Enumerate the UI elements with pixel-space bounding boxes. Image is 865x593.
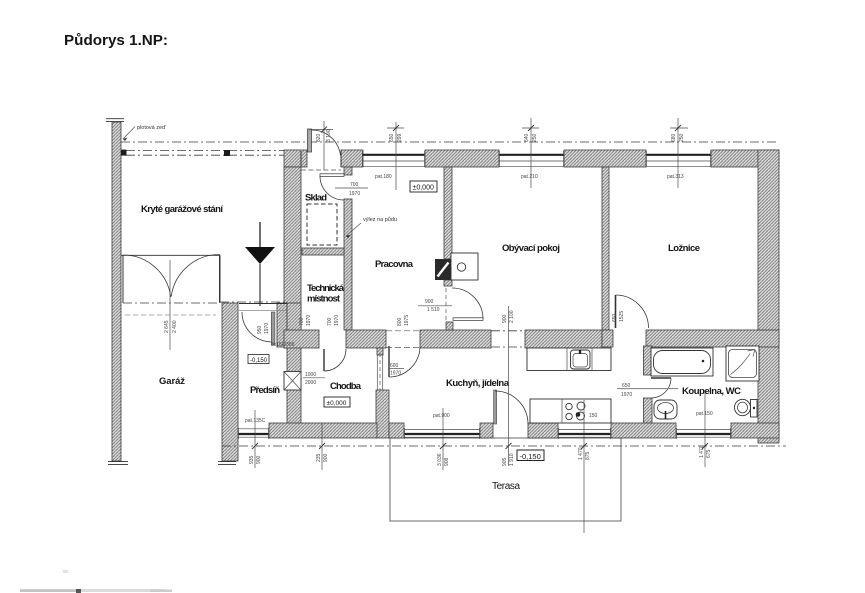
- svg-text:Garáž: Garáž: [159, 376, 185, 387]
- svg-text:Chodba: Chodba: [330, 381, 362, 392]
- svg-text:700: 700: [350, 182, 359, 188]
- svg-text:1 910: 1 910: [509, 453, 515, 466]
- svg-text:150: 150: [589, 413, 598, 419]
- svg-text:600: 600: [390, 363, 399, 369]
- svg-text:Kryté garážové stání: Kryté garážové stání: [141, 204, 223, 215]
- svg-text:pat.313: pat.313: [667, 174, 684, 180]
- svg-text:místnost: místnost: [307, 294, 341, 305]
- svg-text:Obývací pokoj: Obývací pokoj: [502, 243, 560, 254]
- svg-text:1970: 1970: [390, 371, 401, 377]
- svg-text:Technická: Technická: [307, 283, 345, 294]
- svg-text:900: 900: [425, 299, 434, 305]
- svg-text:3 036: 3 036: [437, 453, 443, 466]
- svg-text:-0,150: -0,150: [520, 452, 541, 461]
- svg-text:plotová zeď: plotová zeď: [137, 125, 166, 131]
- svg-text:250: 250: [532, 133, 538, 142]
- svg-text:2 400: 2 400: [172, 320, 178, 333]
- svg-text:900: 900: [323, 453, 329, 462]
- svg-text:900: 900: [256, 455, 262, 464]
- svg-text:700: 700: [327, 317, 333, 326]
- svg-text:820: 820: [316, 133, 322, 142]
- svg-text:1970: 1970: [264, 323, 270, 334]
- svg-text:pat.900: pat.900: [433, 413, 450, 419]
- svg-text:1 510: 1 510: [427, 307, 440, 313]
- svg-text:1525: 1525: [619, 311, 625, 322]
- svg-text:Sklad: Sklad: [305, 193, 327, 204]
- svg-text:900: 900: [502, 314, 508, 323]
- svg-text:pat.150: pat.150: [696, 411, 713, 417]
- svg-text:800: 800: [397, 317, 403, 326]
- svg-text:pat.210: pat.210: [521, 174, 538, 180]
- svg-text:pat.180: pat.180: [375, 174, 392, 180]
- svg-text:2000: 2000: [305, 380, 316, 386]
- svg-text:±0,000: ±0,000: [413, 185, 434, 192]
- svg-text:-0,150: -0,150: [250, 358, 268, 364]
- svg-text:935: 935: [249, 455, 255, 464]
- svg-text:2 100: 2 100: [509, 310, 515, 323]
- svg-text:Půdorys 1.NP:: Půdorys 1.NP:: [64, 33, 168, 49]
- svg-text:250: 250: [679, 133, 685, 142]
- svg-text:1970: 1970: [306, 315, 312, 326]
- svg-text:1000: 1000: [305, 372, 316, 378]
- svg-text:875: 875: [585, 451, 591, 460]
- svg-text:výlez na půdu: výlez na půdu: [363, 216, 397, 223]
- svg-text:Předsíň: Předsíň: [250, 385, 280, 396]
- svg-text:1 470: 1 470: [578, 447, 584, 460]
- svg-text:±0,000: ±0,000: [327, 400, 347, 407]
- svg-text:640: 640: [524, 133, 530, 142]
- svg-text:908: 908: [444, 457, 450, 466]
- svg-text:680: 680: [671, 133, 677, 142]
- svg-text:Pracovna: Pracovna: [375, 259, 414, 270]
- svg-text:Koupelna, WC: Koupelna, WC: [682, 386, 741, 397]
- svg-text:Kuchyň, jídelna: Kuchyň, jídelna: [446, 378, 510, 389]
- svg-text:Terasa: Terasa: [492, 481, 520, 492]
- svg-text:Ložnice: Ložnice: [668, 243, 700, 254]
- svg-text:3x150/300: 3x150/300: [271, 342, 295, 348]
- svg-text:1970: 1970: [621, 392, 632, 398]
- svg-text:2 645: 2 645: [164, 320, 170, 333]
- svg-text:299: 299: [397, 133, 403, 142]
- svg-text:1970: 1970: [334, 315, 340, 326]
- svg-text:235: 235: [316, 453, 322, 462]
- svg-text:1970: 1970: [349, 191, 360, 197]
- svg-text:pat.135C: pat.135C: [245, 418, 266, 424]
- svg-text:650: 650: [389, 133, 395, 142]
- svg-text:650: 650: [612, 313, 618, 322]
- svg-text:3 190: 3 190: [326, 129, 332, 142]
- svg-text:675: 675: [706, 449, 712, 458]
- svg-text:700: 700: [299, 317, 305, 326]
- svg-text:1975: 1975: [404, 315, 410, 326]
- svg-text:905: 905: [502, 457, 508, 466]
- svg-text:950: 950: [257, 325, 263, 334]
